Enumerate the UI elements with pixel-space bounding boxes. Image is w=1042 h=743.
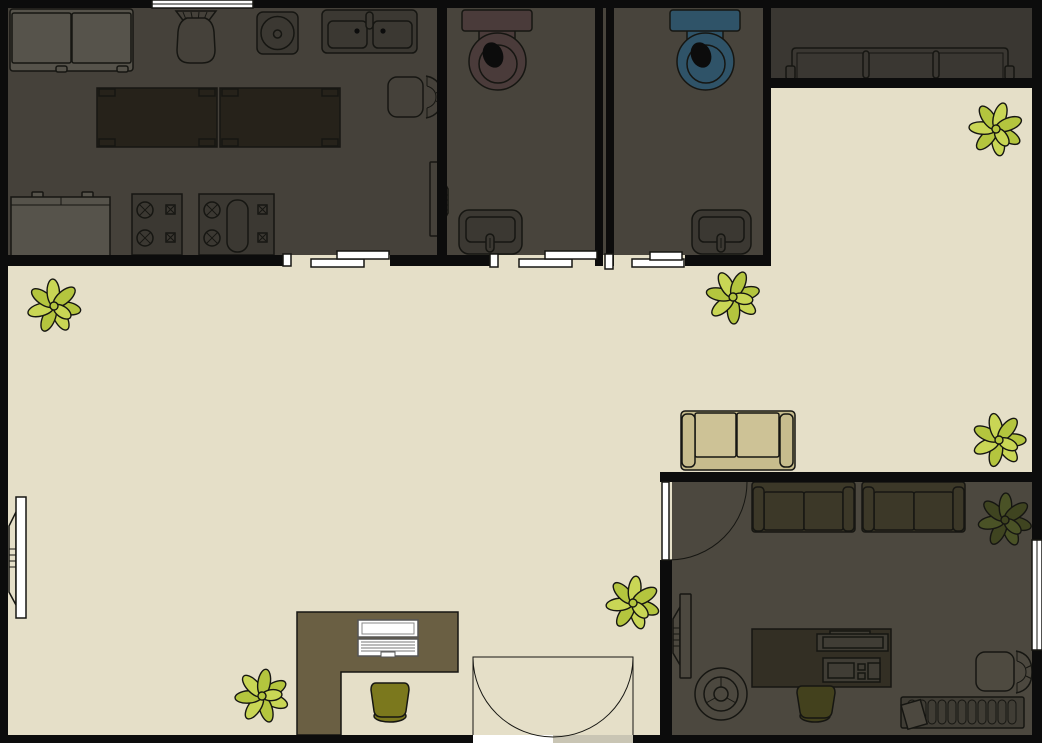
double-basin-sink[interactable]: [322, 10, 417, 53]
office-loveseat-1[interactable]: [752, 482, 855, 532]
lobby-desk-chair[interactable]: [371, 683, 409, 722]
bath1-south-wall: [447, 255, 490, 266]
wash-basin-1[interactable]: [459, 210, 522, 254]
laptop[interactable]: [358, 620, 418, 657]
faucet: [366, 12, 373, 29]
office-loveseat-2[interactable]: [862, 482, 965, 532]
griddle: [227, 200, 248, 252]
prep-table-2[interactable]: [220, 88, 340, 147]
wall-left: [0, 0, 8, 743]
kitchen-south-wall-a: [8, 255, 283, 266]
office-desk-chair[interactable]: [797, 686, 835, 722]
office-side-chair[interactable]: [976, 651, 1032, 693]
lobby-loveseat[interactable]: [681, 411, 795, 470]
nook-south-wall: [763, 78, 1042, 88]
floor-fan[interactable]: [695, 668, 747, 720]
counter-cabinet[interactable]: [11, 192, 110, 257]
kitchen-bath1-wall: [437, 0, 447, 266]
waiting-nook-floor: [763, 8, 1032, 78]
stove-1[interactable]: [132, 194, 182, 257]
stove-2[interactable]: [199, 194, 274, 257]
wash-basin-2[interactable]: [692, 210, 751, 254]
office-west-wall: [660, 560, 672, 743]
kitchen-top-window[interactable]: [152, 0, 253, 8]
office-monitor[interactable]: [817, 631, 888, 651]
prep-table-1[interactable]: [97, 88, 217, 147]
kitchen-side-chair[interactable]: [388, 76, 442, 118]
office-north-wall: [660, 472, 1042, 482]
round-sink-unit[interactable]: [257, 12, 298, 54]
kitchen-loveseat[interactable]: [10, 9, 133, 72]
office-right-window[interactable]: [1032, 540, 1042, 650]
bath2-south-wall: [685, 255, 763, 266]
floor-plan: [0, 0, 1042, 743]
wicker-chair[interactable]: [176, 11, 216, 63]
printer-unit[interactable]: [823, 658, 880, 682]
floor-plan-canvas: [0, 0, 1042, 743]
bath2-west-wall: [606, 0, 614, 266]
bath1-east-wall: [595, 0, 603, 266]
bath2-east-wall: [763, 0, 771, 266]
